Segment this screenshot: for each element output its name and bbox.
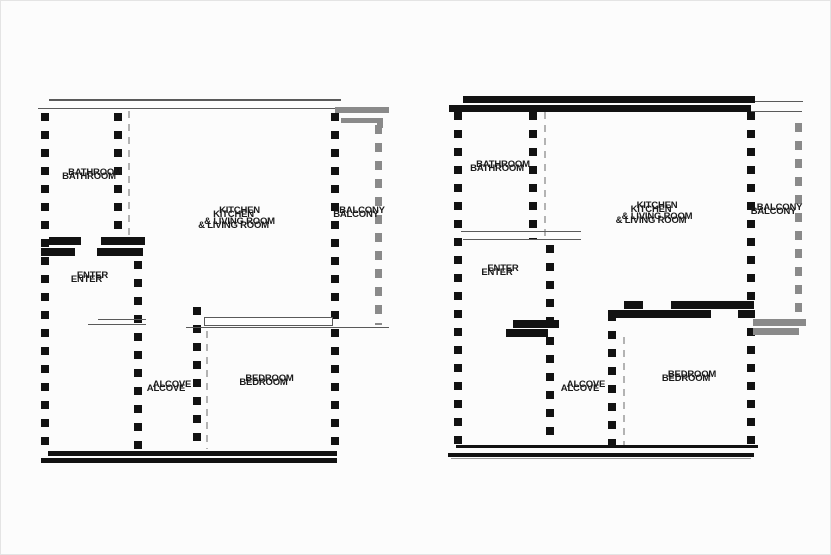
room-label-text-ghost: BALCONY [337, 205, 387, 216]
left-room-label-alcove: ALCOVE ALCOVE [136, 383, 196, 394]
room-label-text-ghost: KITCHEN & LIVING ROOM [192, 205, 287, 227]
right-balcony-bottom-wall-lower [753, 328, 799, 335]
room-label-text-ghost: ALCOVE [142, 379, 202, 390]
left-room-label-balcony: BALCONY BALCONY [331, 209, 381, 220]
right-balcony-east-wall [795, 123, 802, 319]
left-bedroom-window-wall [204, 317, 333, 326]
right-enter-door-wall-b [506, 329, 548, 337]
right-top-wall-lower [449, 105, 751, 112]
right-bathroom-east-wall [529, 112, 537, 239]
right-kitchen-bottom-wall-b2 [738, 310, 751, 318]
left-entry-door-wall-a [41, 248, 75, 256]
right-top-wall-upper [463, 96, 755, 103]
left-outer-west-wall [41, 113, 49, 453]
right-kitchen-bottom-wall-b1 [608, 310, 711, 318]
right-kitchen-balcony-wall [747, 112, 755, 446]
right-bathroom-bottom-line-upper [461, 231, 581, 232]
right-bottom-wall-upper [456, 445, 758, 448]
room-label-text-ghost: BALCONY [752, 202, 807, 213]
right-room-label-kitchen-living: KITCHEN & LIVING ROOM KITCHEN & LIVING R… [601, 204, 701, 226]
right-bottom-wall-lower [448, 453, 754, 457]
right-balcony-top-line-outer [755, 101, 803, 102]
left-alcove-door-line-upper [98, 319, 146, 320]
left-top-wall-line-inner [38, 108, 341, 109]
room-label-text-ghost: KITCHEN & LIVING ROOM [607, 200, 707, 222]
floor-plan-canvas: BATHROOM BATHROOM KITCHEN & LIVING ROOM … [0, 0, 831, 555]
right-room-label-alcove: ALCOVE ALCOVE [549, 383, 611, 394]
right-kitchen-bottom-wall-a1 [624, 301, 643, 309]
left-room-label-bedroom: BEDROOM BEDROOM [221, 377, 306, 388]
left-kitchen-balcony-wall [331, 113, 339, 453]
left-bottom-wall-upper [48, 451, 337, 456]
left-enter-east-wall [134, 261, 142, 453]
right-kitchen-bottom-wall-a2 [671, 301, 754, 309]
left-bathroom-door-wall-b [101, 237, 145, 245]
left-bedroom-west-dash-line [206, 331, 208, 449]
left-room-label-enter: ENTER ENTER [49, 274, 124, 285]
right-balcony-top-line-inner [751, 111, 802, 112]
left-room-label-kitchen-living: KITCHEN & LIVING ROOM KITCHEN & LIVING R… [186, 209, 281, 231]
room-label-text-ghost: ENTER [467, 263, 539, 274]
room-label-text-ghost: BEDROOM [227, 373, 312, 384]
left-alcove-door-line-lower [88, 324, 146, 325]
right-room-label-bathroom: BATHROOM BATHROOM [461, 163, 533, 174]
left-balcony-top-wall [335, 107, 389, 113]
right-room-label-bedroom: BEDROOM BEDROOM [646, 373, 726, 384]
right-enter-east-wall [546, 245, 554, 327]
right-room-label-enter: ENTER ENTER [461, 267, 533, 278]
room-label-text-ghost: BATHROOM [467, 159, 539, 170]
right-enter-door-wall-a [513, 320, 559, 328]
left-balcony-east-wall [375, 125, 382, 325]
left-bottom-wall-lower [41, 458, 337, 463]
right-bathroom-bottom-line-lower [463, 239, 581, 240]
left-bathroom-door-wall-a [49, 237, 81, 245]
right-bottom-wall-shadow-line [451, 458, 751, 459]
left-bedroom-balcony-line [186, 327, 389, 328]
left-top-wall-line-outer [49, 99, 341, 101]
left-entry-door-wall-b [97, 248, 143, 256]
room-label-text-ghost: ALCOVE [555, 379, 617, 390]
right-bedroom-west-dash-line [623, 337, 625, 446]
right-room-label-balcony: BALCONY BALCONY [746, 206, 801, 217]
room-label-text-ghost: ENTER [55, 270, 130, 281]
room-label-text-ghost: BEDROOM [652, 369, 732, 380]
left-room-label-bathroom: BATHROOM BATHROOM [49, 171, 129, 182]
room-label-text-ghost: BATHROOM [55, 167, 135, 178]
right-bathroom-inner-dash-line [544, 112, 546, 239]
right-balcony-bottom-wall-upper [753, 319, 806, 326]
